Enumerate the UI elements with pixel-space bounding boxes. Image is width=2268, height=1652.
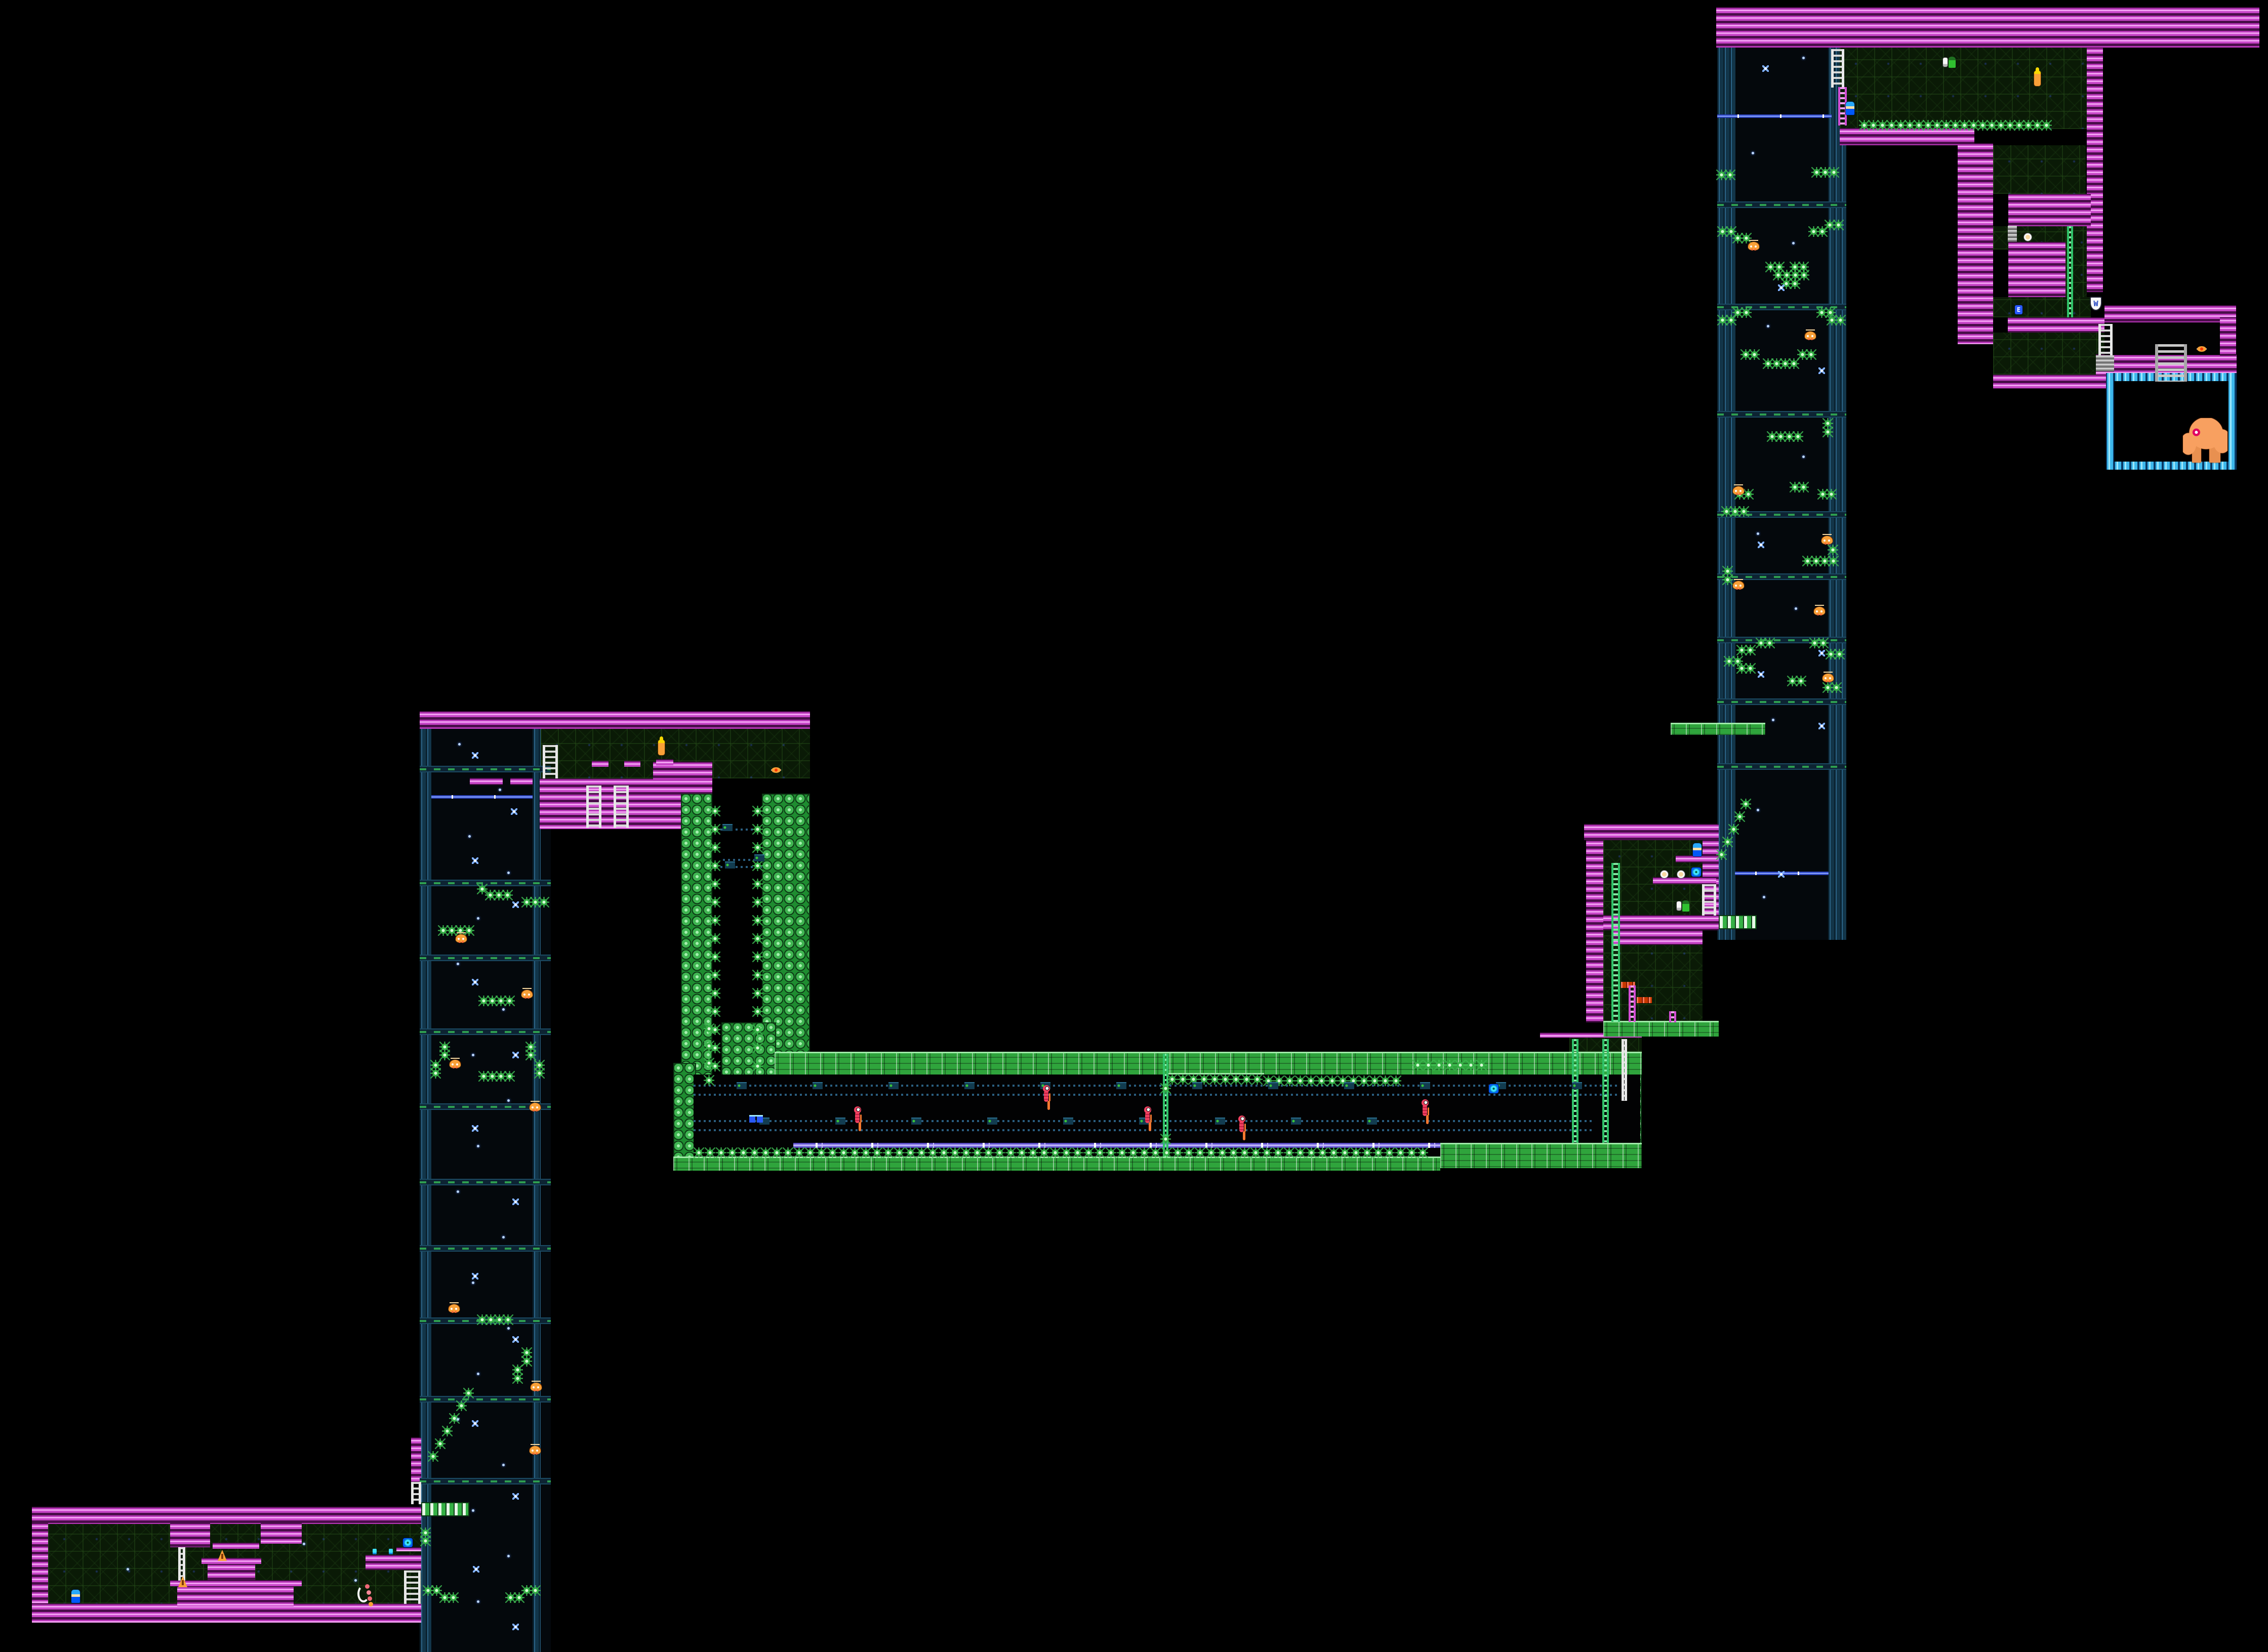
spark-wheel-icon <box>1306 1076 1316 1086</box>
shaft-wall <box>533 729 541 1652</box>
hex-panel-room <box>1993 145 2086 194</box>
spark-wheel-icon <box>1106 1147 1116 1158</box>
white-ladder <box>178 1547 185 1581</box>
grayblocks-sprite <box>2008 226 2017 242</box>
helicopter-sprite <box>530 1103 541 1111</box>
spark-wheel-icon <box>1728 824 1739 835</box>
spark-wheel-icon <box>710 952 720 962</box>
room-divider <box>420 1245 551 1252</box>
spark-wheel-icon <box>1745 663 1756 674</box>
spark-wheel-icon <box>439 1050 450 1060</box>
spark-wheel-icon <box>710 915 720 926</box>
spark-wheel-icon <box>1741 307 1752 318</box>
spark-wheel-icon <box>752 952 763 962</box>
spark-wheel-icon <box>752 897 763 907</box>
spark-wheel-icon <box>1252 1074 1263 1085</box>
spark-wheel-icon <box>1369 1076 1380 1086</box>
star-dot <box>1795 607 1797 610</box>
spark-wheel-icon <box>534 1068 545 1079</box>
spark-wheel-icon <box>504 996 515 1006</box>
spark-wheel-icon <box>420 1536 431 1546</box>
blue-sparkle-icon <box>472 752 478 759</box>
spark-wheel-icon <box>961 1147 971 1158</box>
star-dot <box>1757 809 1759 811</box>
machine-node <box>1572 1082 1582 1089</box>
white-ladder <box>543 745 558 778</box>
helicopter-sprite <box>531 1383 542 1391</box>
spark-wheel-icon <box>752 879 763 889</box>
dotted-platform-line <box>694 1094 1620 1096</box>
magenta-girder-structure <box>170 1580 302 1586</box>
star-dot <box>1763 896 1765 898</box>
star-dot <box>507 1099 510 1102</box>
spark-wheel-icon <box>1380 1076 1391 1086</box>
magenta-girder-structure <box>510 778 533 785</box>
spark-wheel-icon <box>1831 682 1842 693</box>
blue-sparkle-icon <box>472 857 478 864</box>
spark-wheel-icon <box>1741 233 1752 243</box>
spark-wheel-icon <box>727 1147 738 1158</box>
spark-wheel-icon <box>1764 638 1775 648</box>
spark-wheel-icon <box>514 1592 524 1603</box>
star-dot <box>472 1282 474 1284</box>
spark-wheel-icon <box>738 1147 749 1158</box>
pellet-sprite <box>1677 871 1685 878</box>
star-dot <box>502 1236 505 1238</box>
spark-wheel-icon <box>694 1147 704 1158</box>
spark-wheel-icon <box>704 1075 714 1086</box>
spark-wheel-icon <box>1790 278 1800 289</box>
grayblocks-sprite <box>2096 355 2105 371</box>
room-divider <box>1717 411 1846 418</box>
spark-wheel-icon <box>704 1058 714 1068</box>
spark-wheel-icon <box>1799 270 1809 280</box>
room-divider <box>1717 763 1846 770</box>
spark-wheel-icon <box>539 897 549 907</box>
green-girder-platform <box>775 1052 1642 1075</box>
spark-wheel-icon <box>1833 220 1844 230</box>
magenta-girder-structure <box>2104 305 2236 322</box>
magenta-girder-structure <box>170 1523 210 1547</box>
magenta-girder-structure <box>201 1558 261 1564</box>
white-ladder <box>404 1571 421 1604</box>
spark-wheel-icon <box>1743 489 1754 500</box>
spark-wheel-icon <box>710 970 720 980</box>
spark-wheel-icon <box>710 806 720 816</box>
machine-node <box>1268 1082 1278 1089</box>
white-ladder <box>1831 49 1844 88</box>
room-divider <box>420 1028 551 1035</box>
magenta-girder-structure <box>261 1523 302 1544</box>
blue-sparkle-icon <box>1818 723 1825 729</box>
spark-wheel-icon <box>1284 1147 1294 1158</box>
spark-wheel-icon <box>1738 506 1749 517</box>
spark-wheel-icon <box>1466 1060 1476 1070</box>
magenta-girder-structure <box>1603 915 1719 930</box>
flyitem-sprite <box>2197 346 2206 352</box>
hook-sprite <box>357 1584 373 1607</box>
seahorse-sprite <box>1421 1099 1430 1117</box>
room-divider <box>420 766 551 772</box>
star-dot <box>472 1054 474 1056</box>
orange-platform <box>1637 997 1652 1003</box>
room-divider <box>420 1478 551 1484</box>
spark-wheel-icon <box>752 1006 763 1017</box>
spark-wheel-icon <box>1423 1060 1434 1070</box>
machine-node <box>754 854 764 861</box>
magenta-girder-structure <box>213 1543 259 1549</box>
spark-wheel-icon <box>442 1426 453 1436</box>
green-girder-platform <box>673 1157 1440 1171</box>
spark-wheel-icon <box>1749 349 1760 360</box>
machine-node <box>1344 1082 1354 1089</box>
spark-wheel-icon <box>861 1147 871 1158</box>
game-map-canvas[interactable]: WE <box>0 0 2268 1652</box>
star-dot <box>477 1600 479 1603</box>
pellet-sprite <box>2024 233 2032 241</box>
spark-wheel-icon <box>752 824 763 835</box>
spark-wheel-icon <box>994 1147 1005 1158</box>
hex-panel-room <box>1993 333 2109 375</box>
spark-wheel-icon <box>1716 849 1727 860</box>
gem-sprite <box>389 1549 393 1554</box>
magenta-girder-structure <box>2220 317 2236 356</box>
green-girder-platform <box>1603 1021 1719 1037</box>
spark-wheel-icon <box>752 842 763 853</box>
spark-wheel-icon <box>1740 799 1751 809</box>
spark-wheel-icon <box>502 890 513 900</box>
spark-wheel-icon <box>1828 545 1838 555</box>
spark-wheel-icon <box>849 1147 860 1158</box>
spark-wheel-icon <box>1455 1060 1466 1070</box>
star-dot <box>457 1418 459 1421</box>
spark-wheel-icon <box>1306 1147 1317 1158</box>
spark-wheel-icon <box>448 1592 459 1603</box>
spark-wheel-icon <box>710 824 720 835</box>
star-dot <box>1792 242 1795 244</box>
magenta-girder-structure <box>396 1547 421 1551</box>
magenta-girder-structure <box>2087 48 2103 292</box>
soldier-sprite <box>1943 57 1956 68</box>
spark-wheel-icon <box>752 860 763 871</box>
spark-wheel-icon <box>1722 837 1733 847</box>
magenta-girder-structure <box>1613 930 1703 945</box>
teal-ladder <box>1602 1039 1609 1143</box>
machine-node <box>964 1082 975 1089</box>
room-divider <box>420 955 551 961</box>
helicopter-sprite <box>521 990 533 998</box>
gray-ladder <box>2155 344 2187 382</box>
teal-ladder <box>2067 226 2073 317</box>
magenta-girder-structure <box>2008 242 2065 250</box>
helicopter-sprite <box>1814 607 1825 615</box>
spark-wheel-icon <box>783 1147 793 1158</box>
spark-wheel-icon <box>1217 1147 1228 1158</box>
helicopter-sprite <box>1822 674 1834 682</box>
shaft-wall <box>1717 48 1735 940</box>
flyitem-sprite <box>772 767 781 773</box>
spark-wheel-icon <box>710 1006 720 1017</box>
machine-node <box>1420 1082 1430 1089</box>
magenta-girder-structure <box>177 1586 294 1606</box>
dotted-platform-line <box>694 1085 1620 1087</box>
white-ladder <box>2098 324 2113 358</box>
machine-node <box>835 1118 845 1125</box>
spark-wheel-icon <box>1835 315 1846 325</box>
spark-wheel-icon <box>872 1147 882 1158</box>
blue-sparkle-icon <box>1818 650 1825 656</box>
blue-sparkle-icon <box>512 1199 519 1205</box>
blue-sparkle-icon <box>1758 542 1764 548</box>
spark-wheel-icon <box>1206 1147 1217 1158</box>
seahorse-sprite <box>1143 1106 1152 1124</box>
machine-node <box>722 824 733 831</box>
white-ladder <box>411 1482 421 1504</box>
helicopter-sprite <box>1748 242 1759 250</box>
spark-wheel-icon <box>435 1438 445 1449</box>
magenta-girder-structure <box>32 1507 421 1524</box>
blue-sparkle-icon <box>472 1420 478 1427</box>
spark-wheel-icon <box>1362 1147 1372 1158</box>
spark-wheel-icon <box>1806 349 1816 360</box>
orb-sprite <box>1489 1084 1498 1093</box>
candle-sprite <box>658 740 665 755</box>
spark-wheel-icon <box>428 1451 438 1462</box>
blue-sparkle-icon <box>1818 367 1825 374</box>
spark-wheel-icon <box>1316 1076 1327 1086</box>
star-dot <box>1772 719 1774 721</box>
blue-sparkle-icon <box>1778 871 1785 878</box>
magenta-girder-structure <box>411 1437 421 1484</box>
spark-wheel-icon <box>752 933 763 944</box>
megaman-sprite <box>1846 102 1854 115</box>
helicopter-sprite <box>1733 486 1744 494</box>
spark-wheel-icon <box>704 1041 714 1051</box>
spark-wheel-icon <box>710 879 720 889</box>
machine-node <box>1291 1118 1301 1125</box>
candle-sprite <box>2034 71 2041 86</box>
star-dot <box>477 1373 479 1375</box>
spark-wheel-icon <box>503 1314 513 1325</box>
helicopter-sprite <box>449 1304 460 1312</box>
spark-wheel-icon <box>430 1068 441 1079</box>
machine-node <box>888 1082 899 1089</box>
spark-wheel-icon <box>710 897 720 907</box>
magenta-ladder <box>1629 985 1636 1022</box>
spark-wheel-icon <box>794 1147 804 1158</box>
machine-node <box>1215 1118 1225 1125</box>
spark-wheel-icon <box>1834 649 1845 659</box>
star-dot <box>477 917 479 920</box>
star-dot <box>457 1190 459 1193</box>
spark-wheel-icon <box>710 988 720 999</box>
blue-sparkle-icon <box>1758 671 1764 678</box>
spark-wheel-icon <box>1241 1074 1252 1085</box>
energy-beam <box>1717 114 1832 118</box>
blue-sparkle-icon <box>1778 284 1785 291</box>
star-dot <box>1757 532 1759 535</box>
spark-wheel-icon <box>464 925 474 936</box>
seahorse-sprite <box>1237 1116 1246 1133</box>
star-dot <box>507 872 510 874</box>
star-dot <box>477 1145 479 1147</box>
star-dot <box>1767 325 1769 327</box>
magenta-girder-structure <box>32 1523 48 1605</box>
star-dot <box>502 1464 505 1466</box>
seahorse-sprite <box>1042 1085 1051 1102</box>
magenta-girder-structure <box>1586 840 1603 1022</box>
blue-sparkle-icon <box>511 808 517 815</box>
magenta-girder-structure <box>470 778 503 785</box>
boss-sprite <box>2183 418 2227 463</box>
spark-wheel-icon <box>1250 1147 1261 1158</box>
white-ladder <box>1702 884 1716 916</box>
spark-wheel-icon <box>1327 1076 1338 1086</box>
spark-wheel-icon <box>1172 1147 1183 1158</box>
spark-wheel-icon <box>463 1388 474 1398</box>
spark-wheel-icon <box>752 988 763 999</box>
helicopter-sprite <box>1733 581 1744 589</box>
spark-wheel-icon <box>1184 1147 1194 1158</box>
spark-wheel-icon <box>749 1147 760 1158</box>
spark-wheel-icon <box>1726 315 1736 325</box>
spark-wheel-icon <box>1340 1147 1350 1158</box>
helicopter-sprite <box>1805 332 1816 340</box>
spark-wheel-icon <box>710 860 720 871</box>
star-dot <box>1802 57 1805 59</box>
spark-wheel-icon <box>752 915 763 926</box>
spark-wheel-icon <box>1745 645 1756 655</box>
spark-wheel-icon <box>1798 482 1809 492</box>
magenta-girder-structure <box>2008 250 2065 297</box>
spark-wheel-icon <box>1160 1083 1171 1094</box>
spark-wheel-icon <box>1231 1074 1241 1085</box>
spark-wheel-icon <box>927 1147 938 1158</box>
spark-wheel-icon <box>1150 1147 1161 1158</box>
spark-wheel-icon <box>1384 1147 1395 1158</box>
magenta-ladder <box>1669 1011 1676 1022</box>
spark-wheel-icon <box>1209 1074 1220 1085</box>
spark-wheel-icon <box>905 1147 916 1158</box>
spark-wheel-icon <box>1417 1147 1428 1158</box>
star-dot <box>499 789 501 791</box>
grayblocks-sprite <box>2105 355 2114 371</box>
magenta-girder-structure <box>592 761 609 767</box>
blue-sparkle-icon <box>1762 65 1769 72</box>
white-ladder <box>614 786 629 828</box>
spark-wheel-icon <box>805 1147 816 1158</box>
spark-wheel-icon <box>716 1147 726 1158</box>
spark-wheel-icon <box>1317 1147 1328 1158</box>
magenta-girder-structure <box>366 1555 421 1570</box>
room-divider <box>1717 201 1846 208</box>
spark-wheel-icon <box>1039 1147 1049 1158</box>
spark-wheel-icon <box>1050 1147 1061 1158</box>
machine-node <box>1192 1082 1202 1089</box>
spark-wheel-icon <box>1284 1076 1295 1086</box>
spark-wheel-icon <box>1117 1147 1127 1158</box>
spark-wheel-icon <box>1139 1147 1150 1158</box>
spark-wheel-icon <box>752 1043 763 1053</box>
spark-wheel-icon <box>1722 574 1733 585</box>
magenta-girder-structure <box>420 711 810 729</box>
hex-panel-room <box>1993 297 2091 317</box>
magenta-girder-structure <box>1676 855 1716 862</box>
spark-wheel-icon <box>916 1147 927 1158</box>
seahorse-sprite <box>853 1106 862 1124</box>
green-pipe-structure <box>673 1063 696 1171</box>
machine-node <box>725 861 735 869</box>
star-dot <box>468 835 471 838</box>
spark-wheel-icon <box>883 1147 894 1158</box>
spark-wheel-icon <box>1273 1147 1283 1158</box>
star-dot <box>354 1579 357 1582</box>
white-ladder <box>586 786 601 828</box>
spark-wheel-icon <box>521 1356 532 1367</box>
magenta-girder-structure <box>208 1564 255 1580</box>
blue-sparkle-icon <box>473 1566 479 1573</box>
spark-wheel-icon <box>1391 1076 1401 1086</box>
helicopter-sprite <box>1821 536 1833 544</box>
spark-wheel-icon <box>705 1147 715 1158</box>
energy-beam <box>431 795 533 799</box>
room-divider <box>420 1396 551 1402</box>
star-dot <box>303 1543 305 1545</box>
green-pipe-structure <box>762 794 810 1053</box>
spark-wheel-icon <box>939 1147 949 1158</box>
blue-sparkle-icon <box>512 1493 519 1500</box>
magenta-girder-structure <box>1993 375 2109 389</box>
spark-wheel-icon <box>710 933 720 944</box>
spark-wheel-icon <box>950 1147 960 1158</box>
star-dot <box>507 1555 510 1557</box>
blue-sparkle-icon <box>512 901 519 908</box>
star-dot <box>1752 152 1754 154</box>
spark-wheel-icon <box>827 1147 838 1158</box>
star-dot <box>458 743 461 746</box>
spark-wheel-icon <box>1818 638 1829 648</box>
spark-wheel-icon <box>894 1147 905 1158</box>
spark-wheel-icon <box>1262 1147 1272 1158</box>
spark-wheel-icon <box>1412 1060 1423 1070</box>
spark-wheel-icon <box>752 806 763 816</box>
spark-wheel-icon <box>1220 1074 1231 1085</box>
magenta-girder-structure <box>656 759 673 765</box>
helicopter-sprite <box>456 934 467 942</box>
spark-wheel-icon <box>1017 1147 1027 1158</box>
magenta-girder-structure <box>2008 194 2091 226</box>
machine-node <box>1116 1082 1126 1089</box>
spark-wheel-icon <box>1406 1147 1417 1158</box>
machine-node <box>1063 1118 1073 1125</box>
machine-node <box>911 1118 921 1125</box>
orb-sprite <box>1691 868 1701 877</box>
spark-wheel-icon <box>1793 431 1803 442</box>
spark-wheel-icon <box>1239 1147 1250 1158</box>
soldier-sprite <box>1677 900 1690 912</box>
dotted-platform-line <box>694 1129 1595 1131</box>
pipe-connector <box>1719 915 1757 929</box>
megaman-sprite <box>1693 843 1702 856</box>
spark-wheel-icon <box>760 1147 771 1158</box>
spark-wheel-icon <box>1444 1060 1455 1070</box>
spark-wheel-icon <box>1789 358 1799 369</box>
helicopter-sprite <box>450 1060 461 1068</box>
spark-wheel-icon <box>1083 1147 1094 1158</box>
spark-wheel-icon <box>1195 1147 1205 1158</box>
star-dot <box>1802 456 1805 458</box>
pipe-connector <box>421 1502 469 1516</box>
